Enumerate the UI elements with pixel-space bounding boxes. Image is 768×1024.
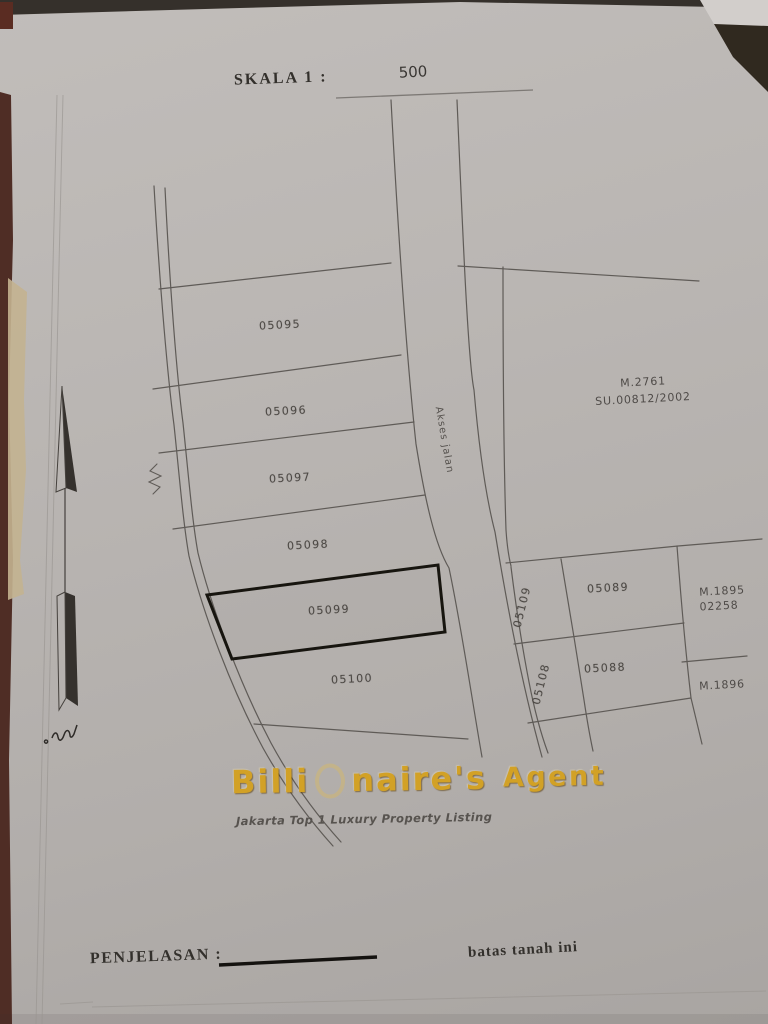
watermark-title-part3: Agent <box>503 760 607 793</box>
ref-label-m1896: M.1896 <box>699 677 745 692</box>
photo-background-edges <box>0 0 768 1024</box>
plot-label-05098: 05098 <box>287 537 330 552</box>
cadastral-map-drawing <box>0 0 768 1024</box>
plot-label-05088: 05088 <box>584 660 627 675</box>
scale-value: 500 <box>398 62 428 81</box>
plot-label-05096: 05096 <box>265 403 308 418</box>
watermark-title-part2: naire's <box>351 759 487 799</box>
ref-label-m1895: M.1895 <box>699 583 745 598</box>
legend-boundary-line <box>219 957 377 965</box>
plot-label-05097: 05097 <box>269 470 312 485</box>
watermark-title-part1: Billi <box>231 762 310 801</box>
scale-label: SKALA 1 : <box>234 68 328 89</box>
plot-label-05099-highlighted: 05099 <box>308 602 351 617</box>
ref-label-m2761: M.2761 <box>620 374 666 389</box>
ref-label-02258: 02258 <box>699 598 739 613</box>
watermark-letter-o-circle <box>315 763 346 799</box>
plot-label-05100: 05100 <box>331 671 374 686</box>
plot-label-05095: 05095 <box>259 317 302 332</box>
scale-underline <box>336 90 533 98</box>
watermark-title: Billinaire'sAgent <box>231 757 607 802</box>
plot-label-05089: 05089 <box>587 580 630 595</box>
scanned-land-plot-document: SKALA 1 : 500 05095 05096 05097 05098 05… <box>0 0 768 1024</box>
parcel-boundary-lines <box>149 100 762 846</box>
paper-edge-lines <box>36 95 766 1024</box>
